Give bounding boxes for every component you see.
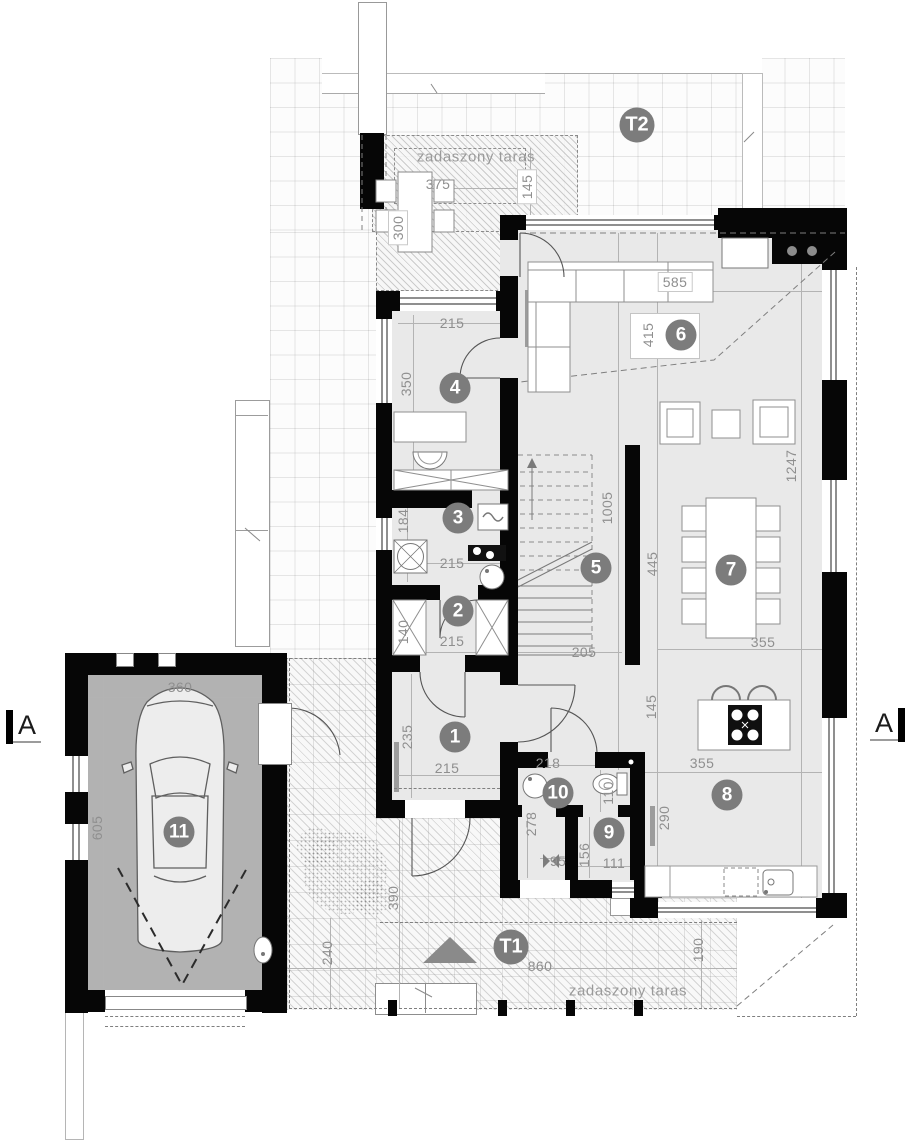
- dim-label: 585: [658, 272, 693, 292]
- window-glass: [835, 270, 837, 380]
- section-letter: A: [870, 710, 898, 741]
- window: [376, 518, 392, 550]
- roof-overhang-dashed: [737, 1016, 856, 1018]
- dim-label: 190: [690, 938, 706, 963]
- dim-label: 355: [751, 634, 776, 650]
- garage-window: [65, 756, 88, 792]
- wall: [478, 585, 518, 600]
- dim-label: 290: [656, 806, 672, 831]
- wall: [570, 880, 612, 898]
- garage-wall: [245, 990, 287, 1012]
- room-1-badge: 1: [440, 722, 471, 753]
- dim-label: 205: [572, 644, 597, 660]
- room-10-badge: 10: [543, 778, 574, 809]
- roof-step-line: [322, 73, 545, 74]
- wall: [465, 655, 518, 672]
- floor-patch: [500, 685, 518, 742]
- dim-label: 110: [600, 781, 616, 805]
- terrace-left-paving: [270, 232, 376, 658]
- roof-step-area-2: [545, 58, 762, 74]
- dim-label: 1247: [783, 450, 799, 483]
- dim-label: 218: [536, 755, 561, 771]
- garage-door-dashed: [105, 1016, 245, 1018]
- room-2-badge: 2: [443, 596, 474, 627]
- window-glass: [612, 891, 634, 893]
- dim-line: [398, 652, 508, 653]
- dim-label: 215: [440, 555, 465, 571]
- garage-side-door: [258, 703, 292, 765]
- dim-line: [413, 315, 414, 488]
- window-glass: [833, 718, 835, 893]
- floor-plan: zadaszony taras 375 145 300 585 415 215 …: [0, 0, 914, 1140]
- dim-label: 350: [398, 372, 414, 397]
- room-9-badge: 9: [594, 818, 625, 849]
- dim-label: 111: [603, 855, 625, 871]
- dim-line: [645, 772, 832, 773]
- terrace-sliding-window: [526, 215, 714, 230]
- wall: [500, 276, 518, 338]
- terrace-column: [566, 1000, 575, 1016]
- dim-label: 278: [523, 812, 539, 837]
- dim-label: 860: [528, 958, 553, 974]
- window-glass: [381, 319, 383, 403]
- back-door-opening: [520, 880, 570, 898]
- dim-label: 390: [385, 886, 401, 911]
- room-6-badge: 6: [666, 320, 697, 351]
- section-bar: [6, 710, 13, 744]
- room-4-badge: 4: [440, 373, 471, 404]
- garage-vent: [116, 653, 134, 667]
- dim-line: [701, 920, 702, 1008]
- dim-label: 145: [643, 695, 659, 720]
- wall: [630, 752, 645, 880]
- wall-slot: [742, 73, 763, 209]
- wall: [500, 742, 518, 898]
- room-3-badge: 3: [443, 503, 474, 534]
- wall: [376, 800, 405, 818]
- chimney: [358, 2, 387, 135]
- entry-porch-hatch: [376, 818, 502, 1010]
- dim-label: 355: [690, 755, 715, 771]
- wall: [518, 215, 526, 230]
- window-glass: [381, 518, 383, 550]
- garage-wall: [65, 990, 105, 1012]
- duct: [625, 756, 637, 768]
- room-5-badge: 5: [581, 553, 612, 584]
- dim-label: 415: [640, 323, 656, 348]
- floor-patch: [500, 338, 518, 378]
- dim-line: [285, 968, 737, 969]
- floor-patch: [500, 240, 518, 276]
- dim-label: 445: [644, 552, 660, 577]
- dim-line: [801, 233, 802, 898]
- chimney-wall: [360, 133, 384, 209]
- terrace-t2-badge: T2: [620, 108, 655, 143]
- window-glass: [400, 297, 496, 299]
- window-glass: [386, 319, 388, 403]
- dim-label: 1005: [599, 492, 615, 525]
- roof-overhang-dashed: [289, 1008, 737, 1010]
- planter-line: [235, 415, 268, 416]
- window-glass: [526, 224, 714, 226]
- dim-line: [618, 233, 619, 770]
- roof-diagonal-dashed: [737, 925, 833, 1006]
- section-marker-left: A: [6, 710, 41, 744]
- window: [400, 291, 496, 311]
- wall: [630, 898, 658, 918]
- room-7-badge: 7: [716, 555, 747, 586]
- garage-door-dashed: [105, 1026, 245, 1028]
- radiator: [394, 742, 399, 792]
- radiator: [650, 806, 655, 846]
- dim-label: 95: [550, 853, 566, 869]
- kitchen-window: [658, 902, 816, 918]
- room-8-badge: 8: [712, 780, 743, 811]
- wall: [822, 215, 847, 270]
- section-bar: [898, 708, 905, 742]
- wall: [816, 898, 847, 918]
- window-glass: [386, 518, 388, 550]
- window-glass: [72, 756, 74, 792]
- dim-label: 300: [388, 211, 408, 246]
- terrace-column: [634, 1000, 643, 1016]
- wall: [822, 380, 847, 480]
- wall: [500, 215, 518, 240]
- dim-line: [518, 652, 622, 653]
- dim-label: 156: [576, 843, 592, 868]
- garage-window: [65, 824, 88, 860]
- room1-dashed: [394, 788, 500, 790]
- wall: [376, 291, 392, 319]
- dim-line: [88, 697, 272, 698]
- wall: [634, 880, 662, 898]
- dim-label: 240: [319, 941, 335, 966]
- dim-label: 215: [435, 760, 460, 776]
- garage-wall: [262, 763, 287, 1013]
- dim-label: 360: [168, 679, 193, 695]
- wall: [376, 403, 392, 518]
- dim-label: 235: [399, 725, 415, 750]
- garage-vent: [158, 653, 176, 667]
- terrace-top-label: zadaszony taras: [417, 149, 535, 166]
- window-glass: [828, 718, 830, 893]
- window-glass: [658, 907, 816, 909]
- roof-step-area: [322, 58, 545, 94]
- window-glass: [830, 480, 832, 572]
- garage-wall: [65, 653, 287, 675]
- dim-label: 215: [440, 315, 465, 331]
- window-glass: [835, 480, 837, 572]
- window-glass: [78, 756, 80, 792]
- dim-line: [399, 820, 400, 1008]
- window-glass: [400, 303, 496, 305]
- window-glass: [658, 911, 816, 913]
- window-glass: [830, 270, 832, 380]
- dim-label: 215: [440, 633, 465, 649]
- window: [376, 319, 392, 403]
- terrace-bottom-label: zadaszony taras: [569, 983, 687, 1000]
- freestanding-wall: [625, 445, 640, 665]
- terrace-t1-badge: T1: [494, 930, 529, 965]
- wall: [508, 490, 518, 508]
- wall: [376, 550, 392, 812]
- dim-label: 140: [395, 620, 411, 645]
- window-glass: [526, 219, 714, 221]
- dim-label: 145: [517, 170, 537, 205]
- window-glass: [72, 824, 74, 860]
- section-marker-right: A: [870, 708, 905, 742]
- roof-overhang-dashed: [856, 267, 858, 1016]
- dim-label: 605: [89, 816, 105, 841]
- garage-gate: [105, 996, 247, 1010]
- front-door-opening: [405, 800, 465, 818]
- section-letter: A: [13, 712, 41, 743]
- walkway: [65, 1012, 84, 1140]
- room-11-badge: 11: [164, 817, 195, 848]
- terrace-t1-dashed: [380, 922, 737, 924]
- wall: [392, 655, 420, 672]
- terrace-column: [388, 1000, 397, 1016]
- planter-wall: [235, 400, 270, 647]
- dim-label: 375: [426, 176, 451, 192]
- window-glass: [612, 887, 634, 889]
- dim-line: [398, 188, 524, 189]
- wall: [822, 572, 847, 718]
- terrace-column: [498, 1000, 507, 1016]
- dim-label: 184: [395, 509, 411, 534]
- garage-wall: [262, 653, 287, 703]
- radiator: [525, 290, 530, 347]
- wall: [500, 880, 520, 898]
- wall: [392, 585, 440, 600]
- wall: [465, 800, 518, 818]
- window-glass: [78, 824, 80, 860]
- planter-line: [235, 530, 268, 531]
- window: [612, 882, 634, 898]
- wall: [518, 805, 522, 817]
